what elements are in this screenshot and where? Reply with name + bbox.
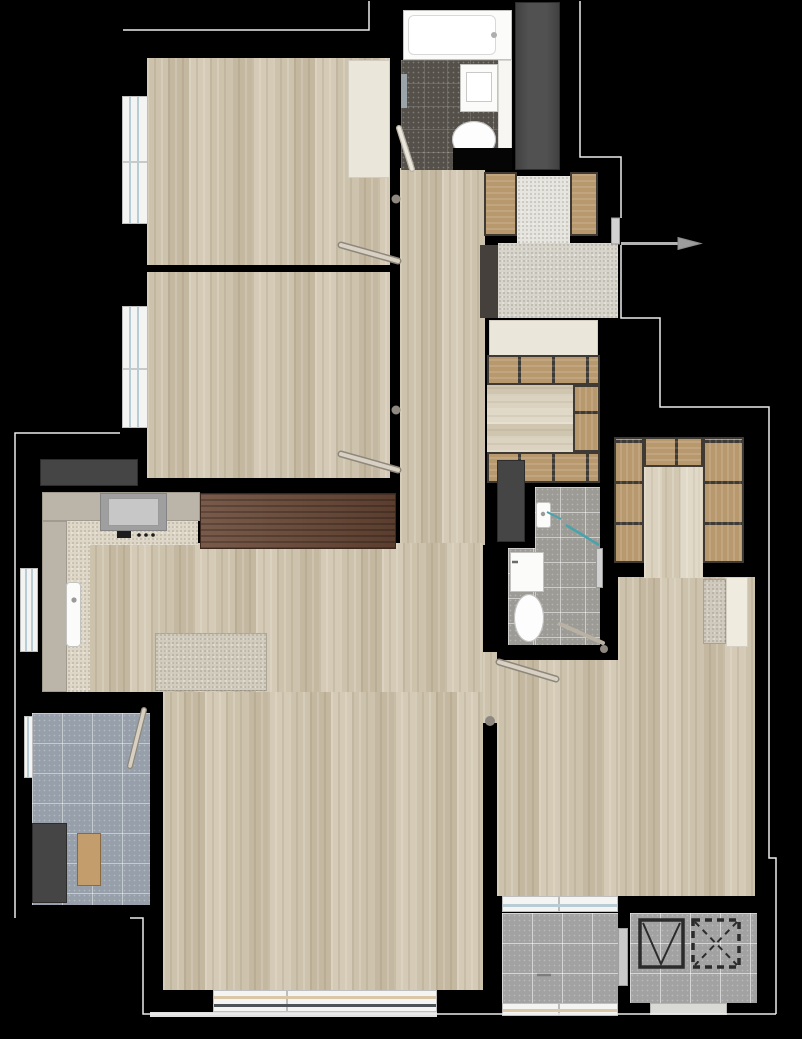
hall-to-bedroom-floor xyxy=(483,652,497,723)
entry-foyer-floor xyxy=(498,243,618,318)
living-room-floor xyxy=(163,692,483,990)
window-sill-south xyxy=(150,1012,437,1017)
bathtub xyxy=(403,10,512,60)
console-shelf xyxy=(489,320,598,358)
closet-shelf-left xyxy=(614,437,644,563)
entrance-door-leaf xyxy=(612,218,620,244)
kitchen-counter-left xyxy=(42,521,67,692)
shoe-cabinet-right xyxy=(570,172,598,236)
window-utility xyxy=(24,716,33,778)
desk-chair-panel xyxy=(703,579,726,644)
washing-machine-middle xyxy=(497,460,525,542)
bedroom-upper-closet xyxy=(348,60,390,178)
bathroom-middle-door-leaf xyxy=(596,548,603,588)
window-bedroom-upper xyxy=(122,96,148,224)
closet-aisle-floor xyxy=(644,467,703,578)
closet-shelf-top xyxy=(644,437,703,467)
window-bedroom-balcony xyxy=(502,896,618,912)
desk xyxy=(726,577,748,647)
toilet-bowl-middle xyxy=(514,594,544,642)
balcony-door-threshold xyxy=(618,928,628,986)
dining-table xyxy=(155,633,267,691)
elevator-hall-floor xyxy=(630,913,757,1003)
window-bedroom-middle xyxy=(122,306,148,428)
rear-balcony-floor xyxy=(502,913,618,1003)
washbasin-middle xyxy=(536,502,551,528)
entry-landing xyxy=(517,176,570,243)
cooktop-surface xyxy=(108,498,159,526)
bedroom-lower-floor-a xyxy=(497,660,618,896)
wall-cap-bathroom-middle xyxy=(600,645,608,653)
corridor-wardrobe-top xyxy=(487,355,600,385)
toilet-tank-middle xyxy=(510,552,544,592)
vanity-sink-top xyxy=(460,64,498,112)
service-shaft xyxy=(515,2,560,170)
window-balcony-south xyxy=(502,1003,618,1016)
shoe-cabinet-left xyxy=(484,172,517,236)
cooktop xyxy=(100,493,167,531)
bedroom-middle-left-floor xyxy=(147,272,390,478)
washing-machine-utility xyxy=(32,823,67,903)
bathroom-top-mirror xyxy=(401,74,407,108)
window-living-south xyxy=(213,990,437,1012)
hallway-floor xyxy=(400,168,485,545)
bathroom-top-wall xyxy=(453,148,512,170)
entry-side-cabinet xyxy=(480,245,498,318)
closet-shelf-right xyxy=(703,437,744,563)
corridor-wardrobe-right xyxy=(573,385,600,452)
corridor-wardrobe-pass xyxy=(487,385,573,452)
floor-plan-canvas xyxy=(0,0,802,1039)
elevator-threshold xyxy=(650,1003,727,1015)
kitchen-sink xyxy=(66,582,81,647)
entrance-arrow-head xyxy=(678,238,701,250)
refrigerator xyxy=(40,459,138,486)
bathtub-basin xyxy=(408,15,496,55)
outline-top-left xyxy=(123,1,369,30)
window-kitchen xyxy=(20,568,38,652)
vanity-basin xyxy=(466,72,492,102)
utility-stool xyxy=(77,833,101,886)
walnut-sideboard xyxy=(200,493,396,549)
dining-living-floor xyxy=(88,543,483,692)
